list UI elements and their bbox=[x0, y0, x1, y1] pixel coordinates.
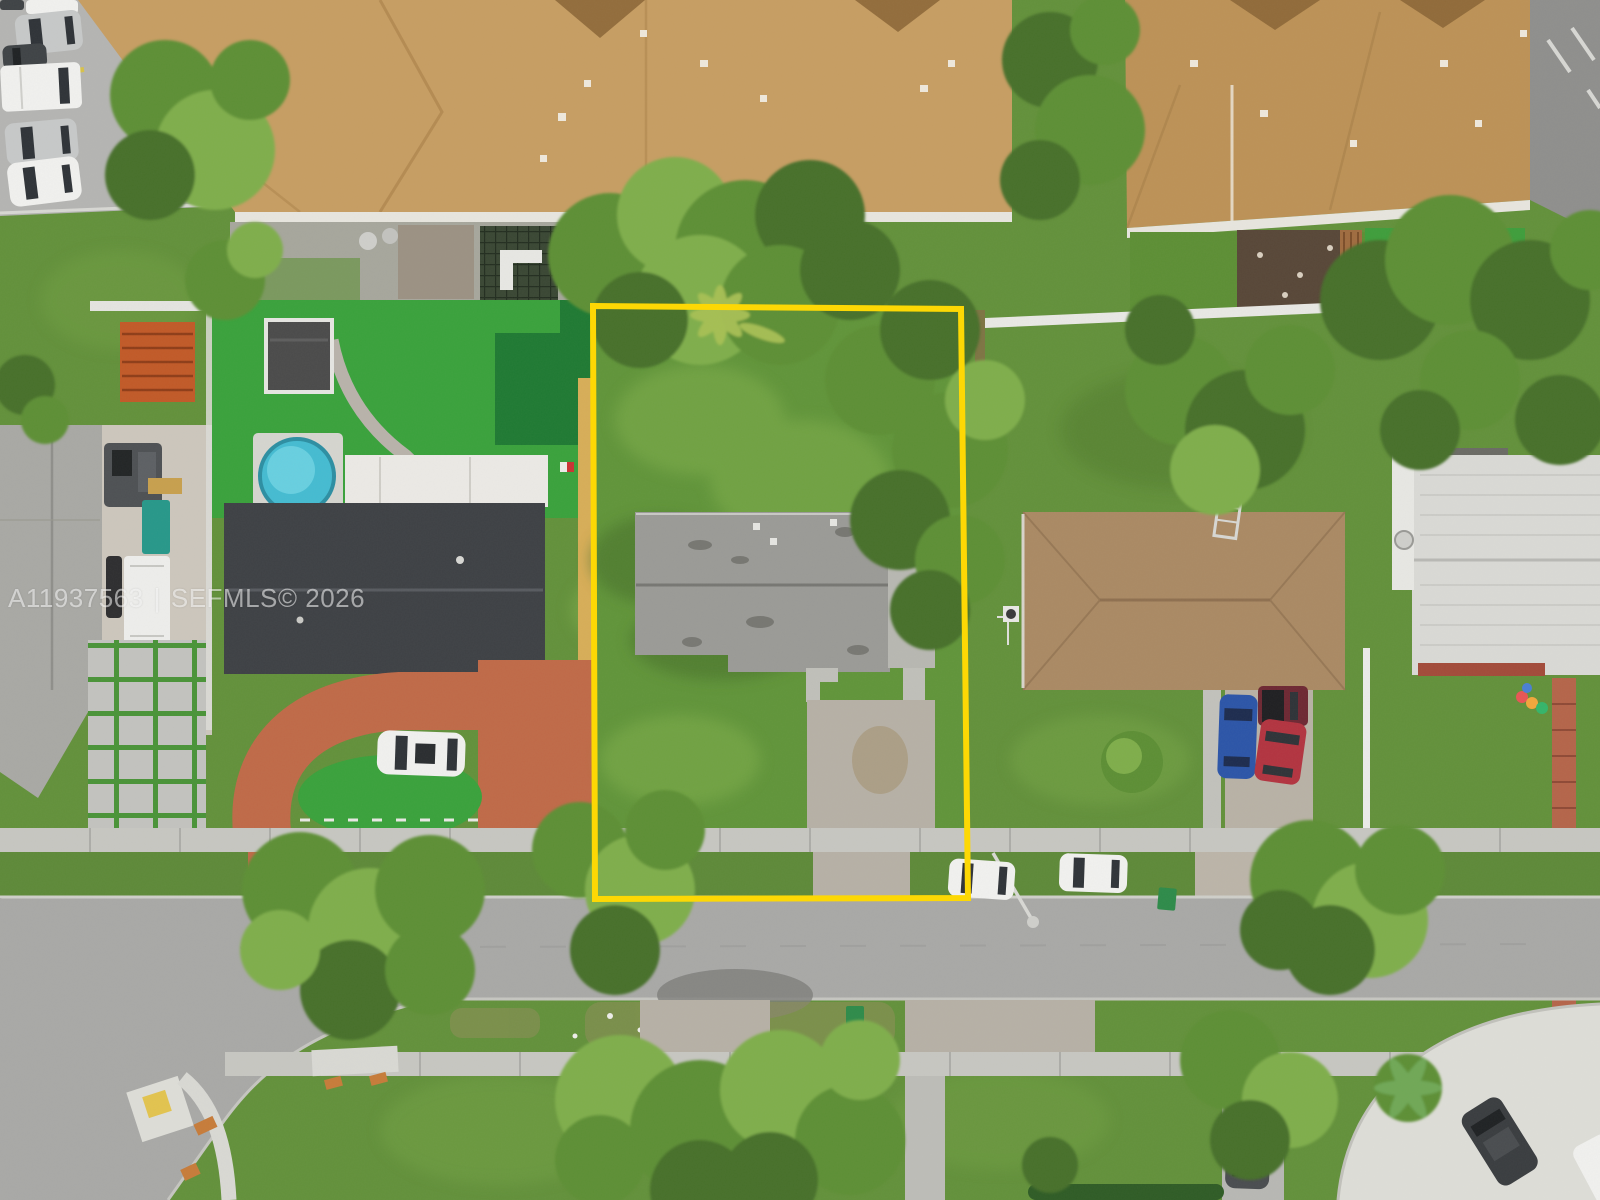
watermark: A11937563|SEFMLS© 2026 bbox=[8, 583, 365, 614]
watermark-listing-id: A11937563 bbox=[8, 583, 144, 613]
watermark-separator: | bbox=[154, 583, 161, 613]
aerial-listing-photo: A11937563|SEFMLS© 2026 bbox=[0, 0, 1600, 1200]
watermark-mls-credit: SEFMLS© 2026 bbox=[171, 583, 365, 613]
